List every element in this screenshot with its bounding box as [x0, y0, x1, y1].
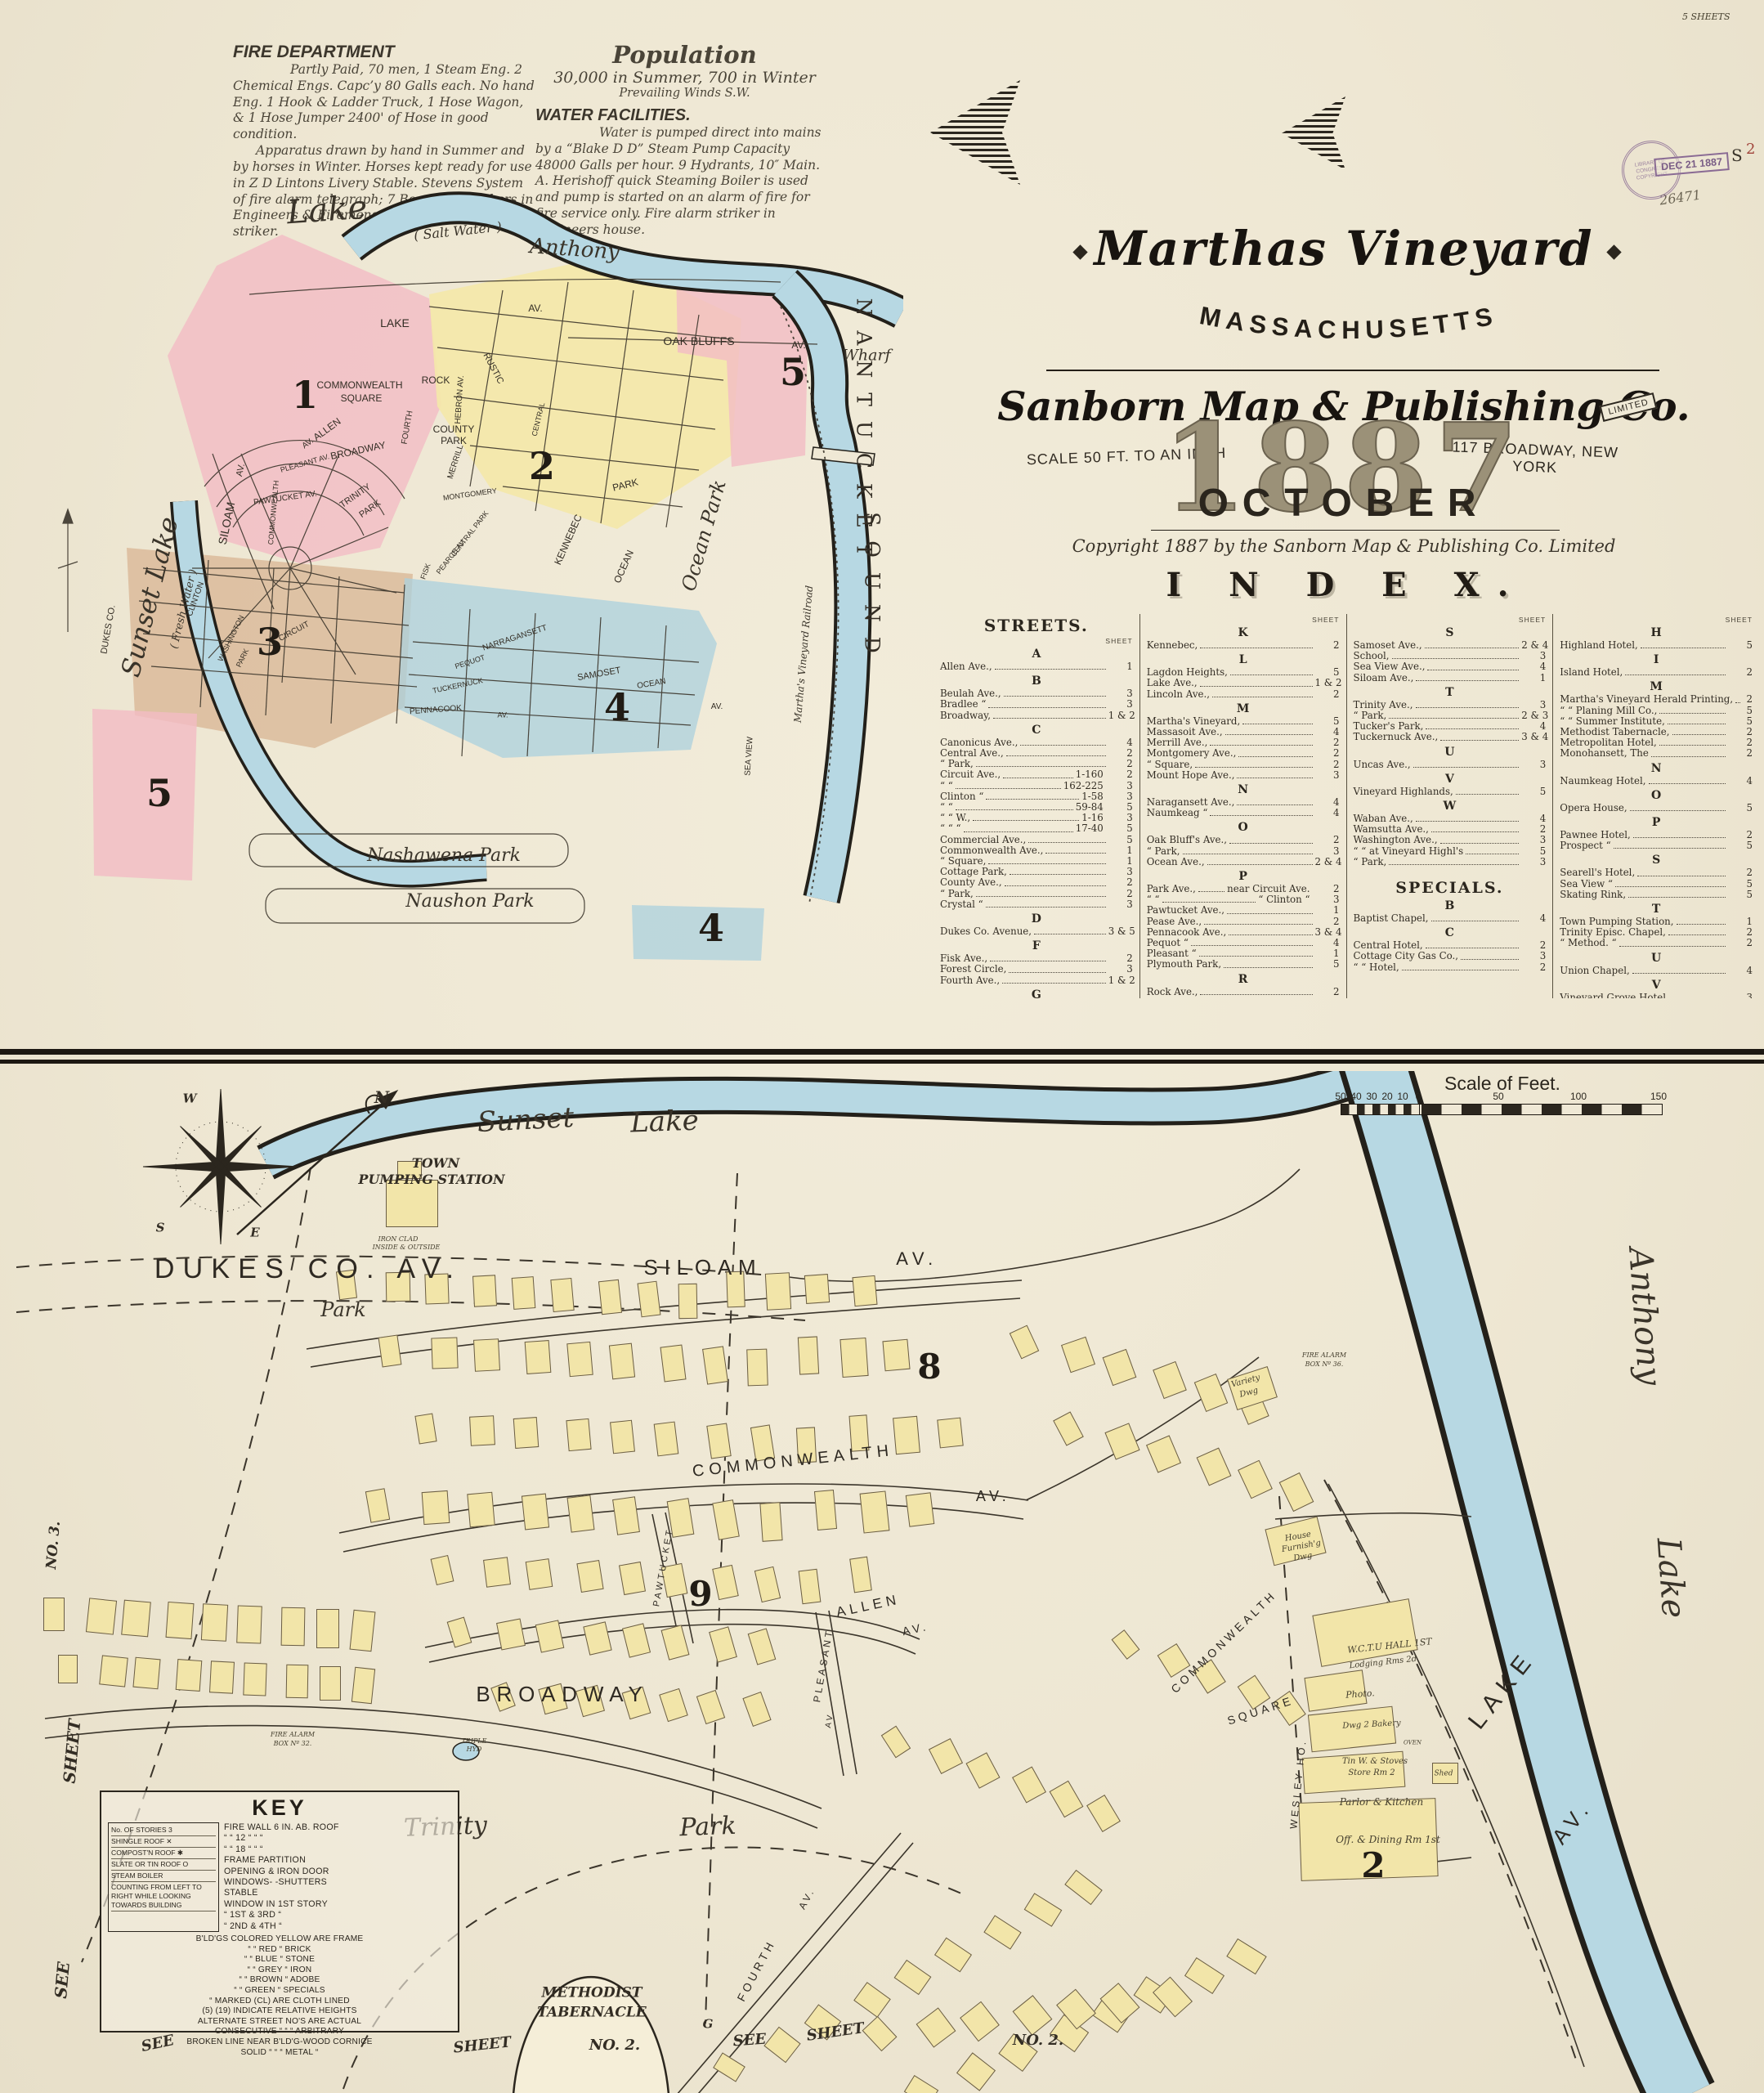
index-letter: S: [1354, 626, 1547, 639]
index-letter: U: [1354, 746, 1547, 759]
index-letter: A: [940, 648, 1133, 661]
map-label: Martha's Vineyard Railroad: [793, 585, 815, 724]
map-label: AV.: [896, 1250, 938, 1268]
rule-line: [1046, 370, 1659, 371]
map-label: FIRE ALARM: [271, 1732, 315, 1738]
map-label: OAK BLUFFS: [663, 335, 734, 347]
svg-text:MASSACHUSETTS: MASSACHUSETTS: [1198, 301, 1500, 344]
index-column: SHEETHHighland Hotel,5IIsland Hotel,2MMa…: [1552, 614, 1759, 998]
key-color-item: SOLID “ “ “ METAL “: [108, 2048, 451, 2059]
key-color-item: (5) (19) INDICATE RELATIVE HEIGHTS: [108, 2006, 451, 2017]
map-label: Anthony: [1623, 1246, 1666, 1386]
index-letter: O: [1560, 789, 1753, 802]
index-entry: Sea View Ave.,4: [1354, 661, 1547, 672]
index-entry: Plymouth Park,5: [1147, 959, 1340, 970]
index-column: SHEETSSamoset Ave.,2 & 4School,3Sea View…: [1346, 614, 1553, 998]
map-label: Wharf: [842, 348, 890, 364]
index-letter: M: [1560, 680, 1753, 693]
index-letter: P: [1147, 870, 1340, 883]
map-label: 4: [698, 909, 724, 947]
key-color-item: “ “ BLUE “ STONE: [108, 1955, 451, 1965]
map-label: CENTRAL: [531, 402, 547, 437]
index-letter: L: [1147, 653, 1340, 666]
map-label: Dwg 2 Bakery: [1342, 1719, 1401, 1731]
index-letter: M: [1147, 702, 1340, 715]
key-symbol-item: No. OF STORIES 3: [111, 1825, 216, 1836]
section-divider: [0, 1049, 1764, 1064]
index-entry: Oak Bluff's Ave.,2: [1147, 835, 1340, 845]
map-label: 1: [292, 376, 318, 414]
map-label: COMMONWEALTH: [267, 480, 280, 545]
map-label: AV.: [497, 712, 508, 719]
index-entry: Park Ave.,near Circuit Ave.2: [1147, 884, 1340, 894]
map-label: FISK: [419, 562, 432, 580]
map-label: COMMONWEALTH: [316, 380, 402, 390]
map-label: SHEET: [453, 2035, 512, 2055]
index-entry: “ Method. “2: [1560, 938, 1753, 948]
scale-tick: 20: [1381, 1091, 1392, 1102]
map-label: ALLEN: [835, 1592, 901, 1619]
map-label: SHEET: [61, 1719, 83, 1784]
index-entry: “ Park,3: [1147, 846, 1340, 857]
index-letter: W: [1354, 800, 1547, 813]
index-letter: C: [940, 724, 1133, 737]
map-label: TABERNACLE: [537, 2006, 647, 2020]
index-entry: Broadway,1 & 2: [940, 710, 1133, 721]
index-entry: Ocean Ave.,2 & 4: [1147, 857, 1340, 867]
map-label: DUKES CO.: [100, 604, 117, 655]
index-columns: STREETS.SHEETAAllen Ave.,1BBeulah Ave.,3…: [933, 614, 1759, 998]
map-label: PEQUOT: [454, 654, 486, 670]
scale-tick: 150: [1650, 1091, 1667, 1102]
map-label: BROADWAY: [329, 440, 387, 461]
map-label: AV.: [301, 437, 316, 451]
map-subtitle: Marthas Vineyard: [1094, 221, 1593, 276]
index-entry: Crystal “3: [940, 899, 1133, 910]
map-label: LAKE: [380, 317, 410, 329]
map-label: OVEN: [1404, 1741, 1421, 1746]
scale-tick: 100: [1570, 1091, 1587, 1102]
map-label: E: [250, 1227, 259, 1239]
key-line-item: WINDOWS- -SHUTTERS: [224, 1877, 451, 1888]
key-color-item: “ “ RED “ BRICK: [108, 1945, 451, 1956]
map-label: FIRE ALARM: [1302, 1352, 1346, 1359]
index-sheet-label: SHEET: [1354, 616, 1547, 624]
map-label: PARK: [235, 648, 251, 668]
map-label: PAWTUCKET AV.: [253, 491, 318, 508]
map-label: FOURTH: [735, 1938, 777, 2003]
map-label: OCEAN: [612, 549, 635, 585]
map-label: PEARCE AV.: [435, 538, 467, 576]
index-letter: P: [1560, 816, 1753, 829]
index-title: I N D E X.: [933, 566, 1759, 604]
index-sheet-label: SHEET: [940, 637, 1133, 645]
map-label: TRIPLE: [461, 1738, 486, 1745]
index-entry: Washington Ave.,3: [1354, 835, 1547, 845]
map-label: 2: [529, 447, 555, 485]
map-label: 9: [688, 1577, 712, 1611]
index-column: SHEETKKennebec,2LLagdon Heights,5Lake Av…: [1139, 614, 1346, 998]
index-entry: Baptist Chapel,4: [1354, 913, 1547, 924]
scale-tick: 0: [1416, 1091, 1421, 1102]
map-label: RUSTIC: [481, 352, 505, 385]
title-block: COTTAGE CITY Marthas Vineyard MASSACHUSE…: [924, 33, 1764, 605]
index-entry: Kennebec,2: [1147, 640, 1340, 651]
map-label: COMMONWEALTH: [1169, 1589, 1278, 1695]
map-label: PARK: [611, 477, 639, 492]
map-label: COMMONWEALTH: [692, 1442, 894, 1480]
map-label: 4: [604, 688, 630, 726]
index-streets-heading: STREETS.: [940, 616, 1133, 635]
index-entry: County Ave.,2: [940, 877, 1133, 888]
index-entry: “ Square,2: [1147, 760, 1340, 770]
map-label: Sunset: [477, 1104, 575, 1136]
key-line-item: “ 1ST & 3RD “: [224, 1910, 451, 1920]
fire-department-para1: Partly Paid, 70 men, 1 Steam Eng. 2 Chem…: [233, 62, 535, 143]
map-label: 5: [146, 774, 172, 812]
index-letter: D: [940, 912, 1133, 925]
map-label: NO. 3.: [45, 1521, 63, 1570]
map-label: Photo.: [1345, 1688, 1375, 1699]
key-line-item: “ 2ND & 4TH “: [224, 1921, 451, 1932]
key-color-item: BROKEN LINE NEAR B'LD'G-WOOD CORNICE: [108, 2037, 451, 2048]
population-line1: 30,000 in Summer, 700 in Winter: [535, 69, 834, 87]
map-label: BROADWAY: [476, 1683, 648, 1705]
key-color-item: B'LD'GS COLORED YELLOW ARE FRAME: [108, 1934, 451, 1945]
index-letter: R: [1147, 973, 1340, 986]
map-label: 3: [257, 623, 283, 661]
map-label: N: [374, 1089, 389, 1105]
map-label: SHEET: [806, 2021, 866, 2044]
index-entry: Sea View “5: [1560, 879, 1753, 890]
map-key-title: KEY: [108, 1795, 451, 1821]
index-entry: Naumkeag Hotel,4: [1560, 776, 1753, 787]
key-color-item: “ MARKED (CL) ARE CLOTH LINED: [108, 1997, 451, 2007]
key-line-item: FRAME PARTITION: [224, 1855, 451, 1866]
copyright-rule: [1151, 530, 1560, 531]
index-entry: “ “ Planing Mill Co.,5: [1560, 706, 1753, 716]
overview-map: Lake( Salt Water )AnthonySunset Lake( Fr…: [45, 184, 903, 1034]
water-facilities-title: WATER FACILITIES.: [535, 106, 834, 125]
key-symbol-item: STEAM BOILER: [111, 1871, 216, 1882]
map-key-symbols: No. OF STORIES 3SHINGLE ROOF ✕COMPOST'N …: [108, 1822, 219, 1932]
index-entry: Monohansett, The2: [1560, 748, 1753, 759]
index-entry: Uncas Ave.,3: [1354, 760, 1547, 770]
index-entry: Opera House,5: [1560, 803, 1753, 813]
state-name: MASSACHUSETTS: [1198, 301, 1500, 344]
map-label: Park: [320, 1300, 365, 1320]
key-symbol-item: SHINGLE ROOF ✕: [111, 1836, 216, 1848]
map-label: Shed: [1434, 1771, 1453, 1778]
class-mark: S: [1731, 146, 1743, 165]
index-entry: Circuit Ave.,1-1602: [940, 769, 1133, 780]
map-label: 2: [1361, 1849, 1385, 1883]
map-label: Off. & Dining Rm 1st: [1336, 1835, 1440, 1844]
key-line-item: “ “ 12 “ “ “: [224, 1833, 451, 1844]
key-line-item: WINDOW IN 1ST STORY: [224, 1899, 451, 1910]
scale-tick: 50: [1493, 1091, 1503, 1102]
scale-tick: 30: [1366, 1091, 1377, 1102]
index-entry: Allen Ave.,1: [940, 661, 1133, 672]
map-label: METHODIST: [542, 1987, 642, 2001]
map-key: KEY No. OF STORIES 3SHINGLE ROOF ✕COMPOS…: [100, 1790, 459, 2032]
map-label: PARK: [441, 436, 467, 446]
index-letter: V: [1354, 773, 1547, 786]
map-label: HEBRON AV.: [454, 375, 466, 424]
map-label: NARRAGANSETT: [481, 625, 548, 653]
map-label: G: [703, 2019, 714, 2031]
map-label: FOURTH: [401, 410, 414, 446]
key-line-item: STABLE: [224, 1888, 451, 1898]
key-color-item: ALTERNATE STREET NO'S ARE ACTUAL: [108, 2017, 451, 2028]
index-entry: Montgomery Ave.,2: [1147, 748, 1340, 759]
map-label: OCEAN: [637, 678, 667, 691]
map-month: OCTOBER: [1139, 481, 1548, 526]
overview-map-labels: Lake( Salt Water )AnthonySunset Lake( Fr…: [45, 184, 903, 1034]
index-entry: “ “ Hotel,2: [1354, 962, 1547, 973]
index-entry: “ Park,3: [1354, 857, 1547, 867]
index-letter: C: [1354, 926, 1547, 939]
map-label: AV.: [1548, 1795, 1596, 1848]
map-label: HYD: [467, 1746, 482, 1753]
index-entry: Forest Circle,3: [940, 964, 1133, 975]
map-key-lines: FIRE WALL 6 IN. AB. ROOF“ “ 12 “ “ ““ “ …: [224, 1822, 451, 1932]
map-label: INSIDE & OUTSIDE: [373, 1244, 441, 1251]
scale-tick: 10: [1397, 1091, 1408, 1102]
sheets-note: 5 SHEETS: [1682, 11, 1730, 22]
map-label: SQUARE: [1226, 1694, 1296, 1726]
map-label: ROCK: [422, 375, 450, 385]
map-label: Nashawena Park: [367, 847, 521, 865]
index-column: STREETS.SHEETAAllen Ave.,1BBeulah Ave.,3…: [933, 614, 1139, 998]
index-letter: B: [940, 675, 1133, 688]
index-letter: N: [1147, 783, 1340, 796]
index-letter: B: [1354, 899, 1547, 912]
map-label: IRON CLAD: [378, 1236, 419, 1243]
map-label: NO. 2.: [1013, 2033, 1063, 2048]
map-label: SAMOSET: [577, 666, 622, 683]
map-label: SQUARE: [341, 393, 383, 403]
sanborn-map-sheet: 5 SHEETS FIRE DEPARTMENT Partly Paid, 70…: [0, 0, 1764, 2093]
index-letter: U: [1560, 952, 1753, 965]
map-label: WESLEY HO.: [1288, 1738, 1307, 1829]
map-label: TUCKERNUCK: [432, 677, 483, 695]
index-entry: Highland Hotel,5: [1560, 640, 1753, 651]
map-label: S O U N D: [862, 512, 883, 657]
index-entry: Vineyard Grove Hotel,3: [1560, 993, 1753, 998]
map-label: PARK: [358, 499, 383, 520]
index-entry: Dukes Co. Avenue,3 & 5: [940, 926, 1133, 937]
map-label: Dwg: [1239, 1387, 1260, 1400]
map-label: MERRILL: [447, 444, 466, 480]
key-symbol-item: COMPOST'N ROOF ✱: [111, 1848, 216, 1859]
map-label: AV.: [976, 1489, 1010, 1504]
copyright-line: Copyright 1887 by the Sanborn Map & Publ…: [924, 536, 1764, 556]
index-letter: I: [1560, 653, 1753, 666]
key-symbol-item: SLATE OR TIN ROOF O: [111, 1859, 216, 1871]
map-label: W.C.T.U HALL 1ST: [1347, 1637, 1432, 1655]
map-label: KENNEBEC: [553, 513, 584, 566]
index-entry: Island Hotel,2: [1560, 667, 1753, 678]
map-label: Store Rm 2: [1348, 1769, 1395, 1777]
index-entry: Cottage City Gas Co.,3: [1354, 951, 1547, 961]
index-entry: Rural Circle,3: [1147, 997, 1340, 998]
index-letter: G: [940, 988, 1133, 998]
key-line-item: OPENING & IRON DOOR: [224, 1867, 451, 1877]
index-entry: Rock Ave.,2: [1147, 987, 1340, 997]
map-label: PLEASANT: [812, 1628, 835, 1703]
index-sheet-label: SHEET: [1147, 616, 1340, 624]
state-arc: MASSACHUSETTS: [1087, 278, 1610, 372]
map-label: AV.: [528, 303, 542, 313]
map-label: AV.: [711, 703, 723, 711]
map-label: PENNACOOK: [410, 705, 462, 716]
map-label: SILOAM: [643, 1257, 762, 1278]
map-label: BOX Nº 36.: [1305, 1361, 1344, 1368]
map-label: Lake: [286, 191, 369, 230]
index-letter: K: [1147, 626, 1340, 639]
index-entry: Naumkeag “4: [1147, 808, 1340, 818]
map-label: SEE: [52, 1961, 72, 2000]
index-entry: Lake Ave.,1 & 2: [1147, 678, 1340, 688]
scale-tick: 40: [1350, 1091, 1361, 1102]
map-label: Park: [679, 1814, 736, 1840]
scale-tick: 50: [1335, 1091, 1345, 1102]
map-label: SEE: [732, 2032, 767, 2050]
map-label: NO. 2.: [589, 2038, 640, 2053]
population-title: Population: [535, 41, 834, 69]
map-label: Parlor & Kitchen: [1340, 1797, 1423, 1807]
index-letter: S: [1560, 854, 1753, 867]
key-color-item: “ “ GREY “ IRON: [108, 1965, 451, 1976]
map-label: Anthony: [529, 235, 620, 263]
index-entry: Skating Rink,5: [1560, 890, 1753, 900]
map-label: LAKE: [1464, 1646, 1540, 1733]
key-color-item: “ “ BROWN “ ADOBE: [108, 1975, 451, 1986]
map-label: Lake: [630, 1107, 700, 1137]
population-line2: Prevailing Winds S.W.: [535, 87, 834, 100]
map-label: ALLEN: [311, 416, 343, 442]
key-symbol-item: COUNTING FROM LEFT TO RIGHT WHILE LOOKIN…: [111, 1882, 216, 1911]
map-label: Dwg: [1293, 1552, 1313, 1563]
index-section: I N D E X. STREETS.SHEETAAllen Ave.,1BBe…: [933, 566, 1759, 1020]
map-label: BOX Nº 32.: [274, 1741, 312, 1747]
index-entry: Vineyard Highlands,5: [1354, 787, 1547, 797]
map-label: SEA VIEW: [744, 737, 754, 776]
index-entry: Union Chapel,4: [1560, 966, 1753, 976]
map-label: AV.: [901, 1620, 929, 1638]
map-label: 5: [780, 353, 806, 391]
map-label: PUMPING STATION: [358, 1173, 504, 1186]
mid-arrow-ornament: [1282, 96, 1345, 170]
index-entry: Pease Ave.,2: [1147, 917, 1340, 927]
map-label: TOWN: [412, 1157, 459, 1170]
map-key-colors: B'LD'GS COLORED YELLOW ARE FRAME“ “ RED …: [108, 1934, 451, 2058]
key-color-item: “ “ GREEN “ SPECIALS: [108, 1986, 451, 1997]
index-entry: Clinton “1-583: [940, 791, 1133, 802]
map-label: Tin W. & Stoves: [1342, 1758, 1408, 1766]
fire-department-title: FIRE DEPARTMENT: [233, 43, 535, 62]
map-label: MONTGOMERY: [443, 487, 498, 502]
index-letter: T: [1354, 686, 1547, 699]
map-label: PAWTUCKET: [652, 1527, 675, 1607]
index-entry: Tuckernuck Ave.,3 & 4: [1354, 732, 1547, 742]
index-entry: “ Park,2: [940, 889, 1133, 899]
index-entry: Lincoln Ave.,2: [1147, 689, 1340, 700]
copy-number: 2: [1746, 141, 1755, 158]
index-entry: Pawtucket Ave.,1: [1147, 905, 1340, 916]
key-line-item: “ “ 18 “ “ “: [224, 1844, 451, 1855]
subtitle-row: Marthas Vineyard: [924, 221, 1764, 276]
index-entry: “ “162-2253: [940, 781, 1133, 791]
map-label: Sunset Lake: [117, 514, 181, 679]
key-color-item: CONSECUTIVE “ “ “ ARBITRARY: [108, 2027, 451, 2037]
index-letter: O: [1147, 821, 1340, 834]
scale-bar-rule-fine: [1341, 1104, 1420, 1115]
map-label: SILOAM: [217, 501, 237, 546]
map-label: Naushon Park: [405, 893, 534, 911]
index-letter: H: [1560, 626, 1753, 639]
map-label: S: [156, 1222, 165, 1235]
left-arrow-ornament: [930, 80, 1020, 185]
scale-bar: Scale of Feet. 5040302010050100150: [1331, 1073, 1674, 1123]
map-label: Lodging Rms 2d: [1349, 1656, 1417, 1671]
index-letter: N: [1560, 762, 1753, 775]
index-letter: T: [1560, 903, 1753, 916]
index-entry: Martha's Vineyard Herald Printing,2: [1560, 694, 1753, 705]
index-entry: Fourth Ave.,1 & 2: [940, 975, 1133, 986]
map-label: AV.: [235, 463, 247, 477]
map-label: W: [183, 1093, 197, 1105]
map-label: DUKES CO. AV.: [154, 1255, 462, 1283]
main-map: SunsetLakeTOWNPUMPING STATIONIRON CLADIN…: [0, 1071, 1764, 2093]
index-letter: F: [940, 939, 1133, 952]
map-label: PLEASANT AV.: [280, 453, 330, 474]
index-entry: Siloam Ave.,1: [1354, 673, 1547, 683]
index-sheet-label: SHEET: [1560, 616, 1753, 624]
key-line-item: FIRE WALL 6 IN. AB. ROOF: [224, 1822, 451, 1833]
map-label: COUNTY: [433, 424, 475, 434]
map-label: Lake: [1652, 1537, 1690, 1620]
index-entry: Searell's Hotel,2: [1560, 867, 1753, 878]
index-letter: V: [1560, 979, 1753, 992]
index-entry: Mount Hope Ave.,3: [1147, 770, 1340, 781]
map-label: Ocean Park: [678, 477, 729, 593]
index-entry: “ “ W.,1-163: [940, 813, 1133, 823]
map-label: AV.: [791, 340, 805, 350]
map-label: AV.: [797, 1886, 817, 1911]
index-entry: Prospect “5: [1560, 840, 1753, 851]
index-entry: Commercial Ave.,5: [940, 835, 1133, 845]
index-entry: “ “ “17-405: [940, 823, 1133, 834]
index-entry: Bradlee “3: [940, 699, 1133, 710]
map-label: ( Salt Water ): [413, 220, 502, 242]
index-entry: “ “ at Vineyard Highl's5: [1354, 846, 1547, 857]
map-label: 8: [917, 1350, 941, 1384]
map-label: AV.: [825, 1709, 836, 1729]
index-specials-heading: SPECIALS.: [1354, 879, 1547, 897]
